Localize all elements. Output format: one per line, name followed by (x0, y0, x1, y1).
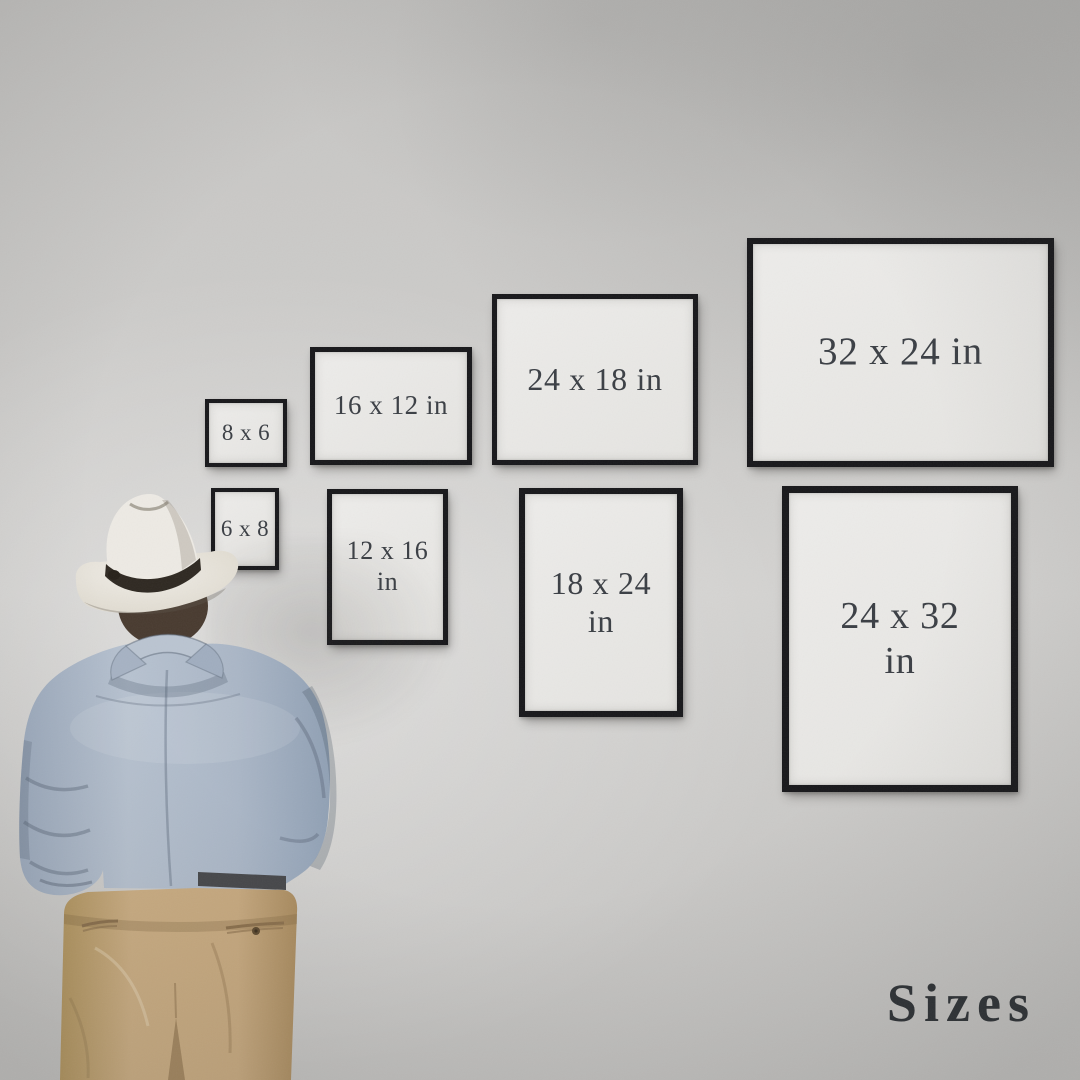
frame-16x12: 16 x 12 in (310, 347, 472, 465)
frame-18x24: 18 x 24 in (519, 488, 683, 717)
frame-18x24-label: 18 x 24 in (551, 565, 651, 641)
frame-24x32: 24 x 32 in (782, 486, 1018, 792)
frame-32x24: 32 x 24 in (747, 238, 1054, 467)
frame-32x24-paper: 32 x 24 in (753, 244, 1048, 461)
frame-16x12-label: 16 x 12 in (334, 390, 448, 422)
frame-8x6-paper: 8 x 6 (209, 403, 283, 463)
frame-24x32-label: 24 x 32 in (840, 594, 959, 684)
frame-24x18-label: 24 x 18 in (527, 361, 662, 399)
frame-24x18: 24 x 18 in (492, 294, 698, 465)
man-figure (0, 478, 400, 1080)
frame-sizes-mockup: 8 x 6 16 x 12 in 24 x 18 in 32 x 24 in 6… (0, 0, 1080, 1080)
pants (60, 888, 297, 1080)
hat (76, 494, 238, 614)
frame-18x24-paper: 18 x 24 in (525, 494, 677, 711)
frame-16x12-paper: 16 x 12 in (315, 352, 467, 460)
sizes-caption: Sizes (887, 972, 1036, 1034)
frame-8x6: 8 x 6 (205, 399, 287, 467)
frame-32x24-label: 32 x 24 in (818, 329, 983, 375)
shirt (19, 634, 336, 895)
frame-24x32-paper: 24 x 32 in (789, 493, 1011, 785)
frame-24x18-paper: 24 x 18 in (497, 299, 693, 460)
frame-8x6-label: 8 x 6 (222, 419, 270, 446)
